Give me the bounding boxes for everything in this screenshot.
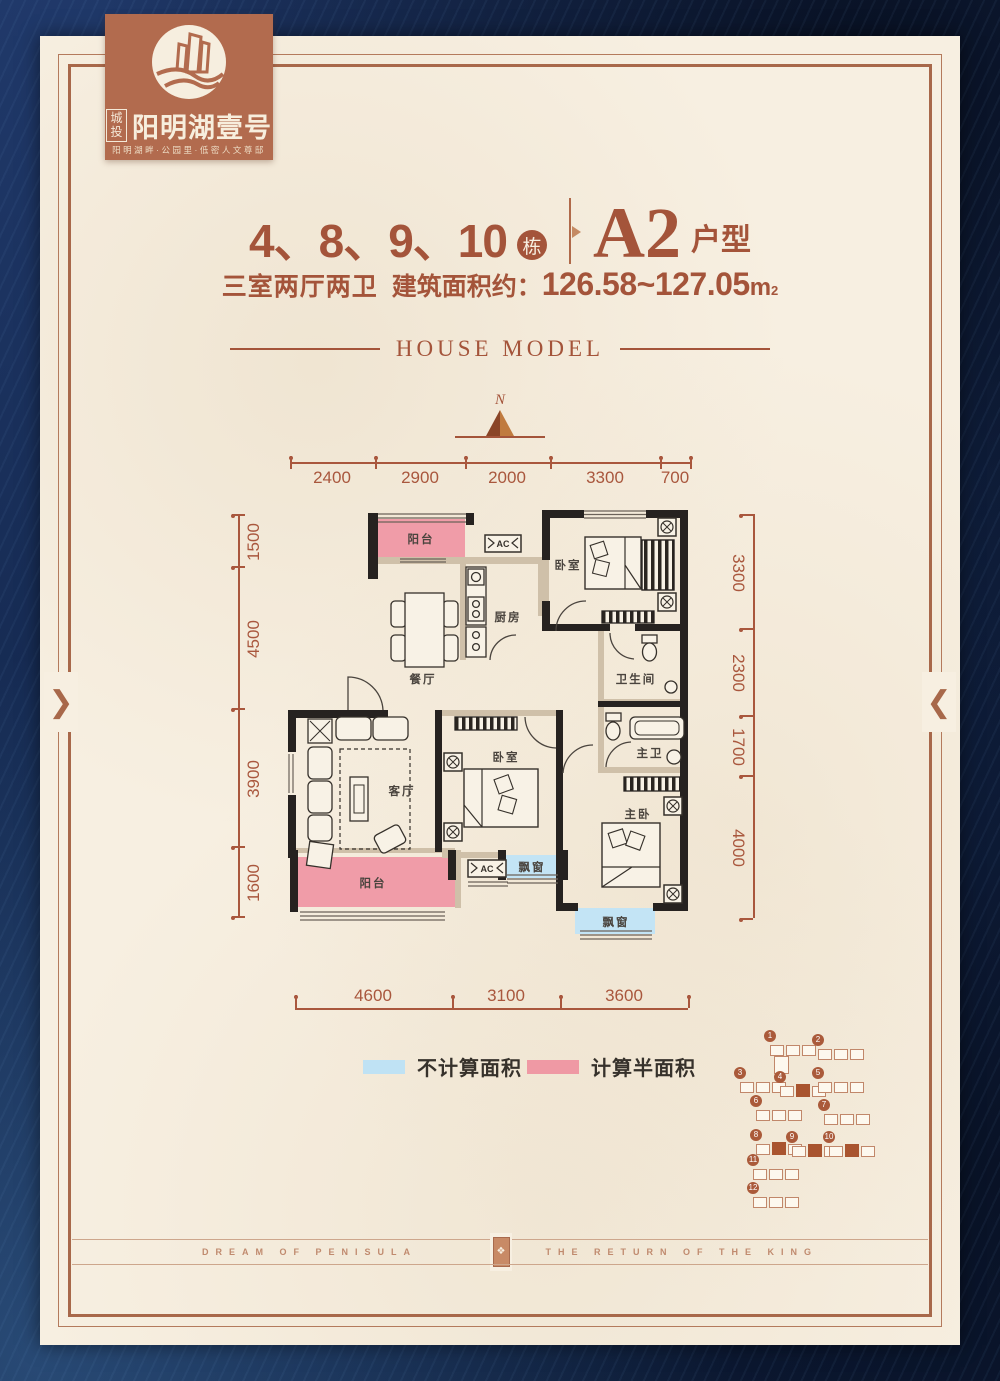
room-label-bedroom1: 卧室 xyxy=(555,558,582,572)
buildings-over-wave-icon xyxy=(149,22,229,102)
chevron-left-icon: ❮ xyxy=(922,672,956,732)
building-number: 4 xyxy=(774,1071,786,1083)
dim-tick xyxy=(740,918,753,920)
dim-tick xyxy=(740,514,753,516)
poster-canvas: ❯ ❮ 城投 阳明湖壹号 阳明湖畔·公园里·低密人文尊邸 4、8、9、10 栋 … xyxy=(0,0,1000,1381)
room-label-balcony-top: 阳台 xyxy=(408,532,435,546)
ac-label-bottom: AC xyxy=(481,864,494,874)
brand-logo: 城投 阳明湖壹号 阳明湖畔·公园里·低密人文尊邸 xyxy=(105,14,273,160)
legend-not-counted: 不计算面积 xyxy=(363,1052,522,1081)
area-label: 建筑面积约： xyxy=(392,267,542,303)
dim-left-3: 3900 xyxy=(244,749,264,809)
dim-right-3: 1700 xyxy=(728,717,748,777)
area-value: 126.58~127.05 xyxy=(542,266,750,303)
room-label-bay-window-1: 飘窗 xyxy=(519,860,546,874)
kitchen-counter xyxy=(466,567,486,657)
north-compass: N xyxy=(455,392,545,444)
building-number: 2 xyxy=(812,1034,824,1046)
building-number: 10 xyxy=(823,1131,835,1143)
area-superscript: 2 xyxy=(771,283,778,298)
brand-name: 阳明湖壹号 xyxy=(132,106,272,145)
heading-rule-right xyxy=(620,348,770,350)
dim-tick xyxy=(295,995,297,1008)
dim-tick xyxy=(740,628,753,630)
dining-table xyxy=(391,593,458,667)
dim-line-bottom xyxy=(295,1008,688,1010)
dim-line-right xyxy=(753,514,755,918)
chevron-right-icon: ❯ xyxy=(44,672,78,732)
building-number: 9 xyxy=(786,1131,798,1143)
room-label-master-bath: 主卫 xyxy=(637,746,664,760)
dim-left-4: 1600 xyxy=(244,853,264,913)
dim-bottom-1: 4600 xyxy=(343,986,403,1006)
building-number: 6 xyxy=(750,1095,762,1107)
plan-code-suffix: 户型 xyxy=(691,215,751,259)
dim-top-2: 2900 xyxy=(390,468,450,488)
dim-tick xyxy=(232,708,245,710)
legend-half-counted: 计算半面积 xyxy=(527,1052,696,1081)
legend-swatch-blue xyxy=(363,1060,405,1074)
dim-top-5: 700 xyxy=(645,468,705,488)
plan-code: A2 xyxy=(593,203,681,264)
room-label-bedroom2: 卧室 xyxy=(493,750,520,764)
dim-tick xyxy=(560,995,562,1008)
building-unit-badge: 栋 xyxy=(517,230,547,260)
ac-box-top: AC xyxy=(485,535,521,552)
dim-left-1: 1500 xyxy=(244,512,264,572)
room-label-bay-window-2: 飘窗 xyxy=(603,915,630,929)
room-label-bathroom: 卫生间 xyxy=(616,672,657,686)
dim-tick xyxy=(688,995,690,1008)
dim-top-1: 2400 xyxy=(302,468,362,488)
section-title: HOUSE MODEL xyxy=(396,336,604,362)
footer-band: DREAM OF PENISULA ❖ THE RETURN OF THE KI… xyxy=(72,1239,928,1265)
dim-tick xyxy=(465,456,467,469)
dim-right-4: 4000 xyxy=(728,818,748,878)
dim-tick xyxy=(550,456,552,469)
dim-line-top xyxy=(290,462,690,464)
dim-line-left xyxy=(238,514,240,916)
dim-top-3: 2000 xyxy=(477,468,537,488)
building-number: 7 xyxy=(818,1099,830,1111)
room-spec: 三室两厅两卫 xyxy=(222,267,378,303)
dim-right-1: 3300 xyxy=(728,543,748,603)
brand-prefix: 城投 xyxy=(106,109,127,143)
dim-tick xyxy=(290,456,292,469)
dim-right-2: 2300 xyxy=(728,643,748,703)
building-number: 11 xyxy=(747,1154,759,1166)
heading-rule-left xyxy=(230,348,380,350)
dim-tick xyxy=(375,456,377,469)
master-bedroom-furniture xyxy=(602,777,682,903)
floral-cartouche-icon: ❖ xyxy=(490,1233,512,1271)
dim-left-2: 4500 xyxy=(244,609,264,669)
bedroom2-furniture xyxy=(444,717,538,841)
dim-bottom-3: 3600 xyxy=(594,986,654,1006)
ac-label-top: AC xyxy=(497,539,510,549)
dim-top-4: 3300 xyxy=(575,468,635,488)
floorplan-drawing: AC AC xyxy=(280,505,700,945)
ac-box-bottom: AC xyxy=(468,860,506,877)
bedroom1-furniture xyxy=(585,518,676,623)
building-number: 8 xyxy=(750,1129,762,1141)
room-label-kitchen: 厨房 xyxy=(495,610,522,624)
room-label-balcony-bottom: 阳台 xyxy=(360,876,387,890)
brand-tagline: 阳明湖畔·公园里·低密人文尊邸 xyxy=(105,144,273,156)
footer-text-left: DREAM OF PENISULA xyxy=(202,1247,417,1257)
room-label-dining: 餐厅 xyxy=(409,672,437,686)
building-number: 12 xyxy=(747,1182,759,1194)
plan-title: 4、8、9、10 栋 A2 户型 xyxy=(0,198,1000,264)
footer-text-right: THE RETURN OF THE KING xyxy=(546,1247,819,1257)
building-number: 1 xyxy=(764,1030,776,1042)
compass-arrow-icon xyxy=(486,410,514,436)
room-label-living: 客厅 xyxy=(388,784,416,798)
building-numbers: 4、8、9、10 xyxy=(249,220,507,264)
footer-rule-bottom xyxy=(72,1264,928,1265)
dim-tick xyxy=(452,995,454,1008)
dim-bottom-2: 3100 xyxy=(476,986,536,1006)
building-number: 5 xyxy=(812,1067,824,1079)
floorplan-area: 2400 2900 2000 3300 700 1500 4500 3900 1… xyxy=(230,450,770,1040)
plan-subtitle: 三室两厅两卫 建筑面积约： 126.58~127.05 m 2 xyxy=(0,266,1000,303)
legend-label-half-counted: 计算半面积 xyxy=(591,1052,696,1081)
compass-baseline xyxy=(455,436,545,438)
area-unit: m xyxy=(750,274,771,302)
dim-tick xyxy=(232,916,245,918)
building-number: 3 xyxy=(734,1067,746,1079)
legend-swatch-pink xyxy=(527,1060,579,1074)
legend-label-not-counted: 不计算面积 xyxy=(417,1052,522,1081)
room-label-master-bedroom: 主卧 xyxy=(625,807,652,821)
north-label: N xyxy=(455,392,545,409)
title-divider xyxy=(569,198,571,264)
section-heading: HOUSE MODEL xyxy=(0,336,1000,362)
dim-tick xyxy=(232,846,245,848)
